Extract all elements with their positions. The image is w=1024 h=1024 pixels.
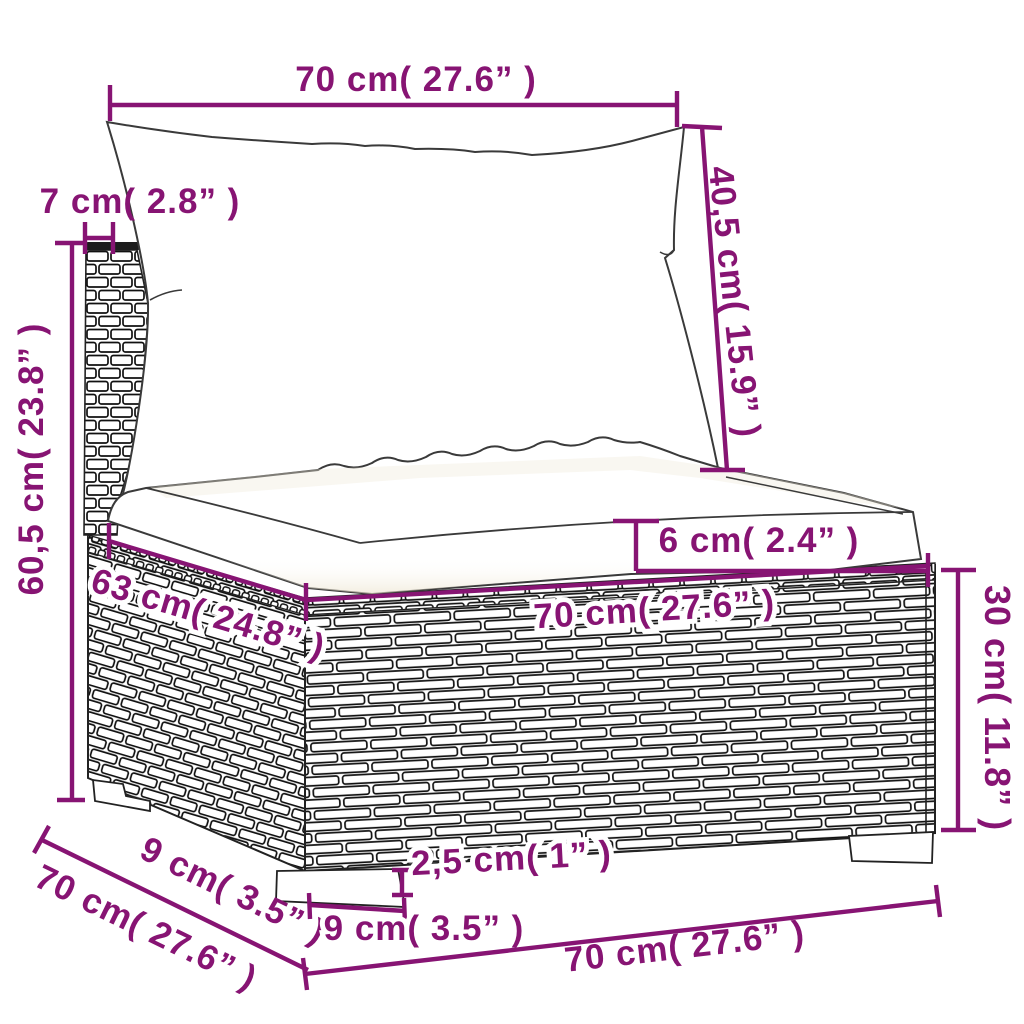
svg-text:7 cm( 2.8” ): 7 cm( 2.8” ) (40, 182, 241, 221)
svg-text:60,5 cm( 23.8” ): 60,5 cm( 23.8” ) (12, 323, 51, 596)
svg-text:9 cm( 3.5” ): 9 cm( 3.5” ) (324, 909, 525, 948)
svg-text:30 cm( 11.8” ): 30 cm( 11.8” ) (977, 585, 1018, 831)
svg-text:6 cm( 2.4” ): 6 cm( 2.4” ) (659, 521, 860, 560)
svg-text:70 cm( 27.6” ): 70 cm( 27.6” ) (295, 60, 537, 99)
